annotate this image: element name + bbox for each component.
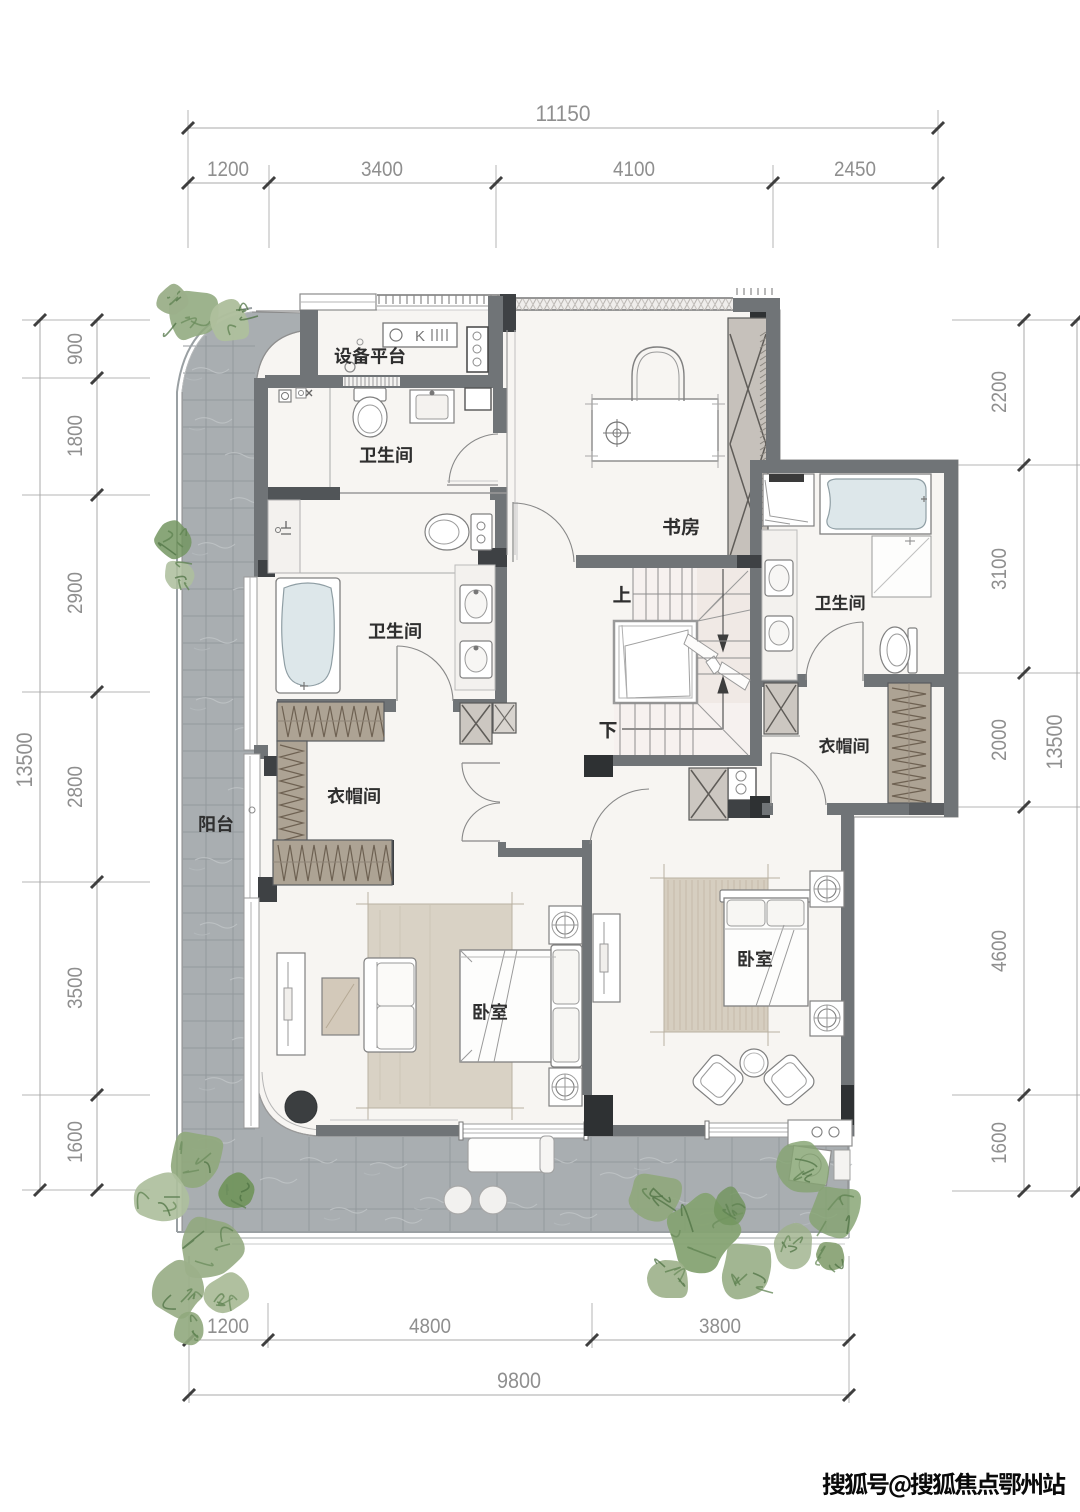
svg-text:3100: 3100 — [988, 548, 1011, 590]
svg-text:1200: 1200 — [207, 1315, 249, 1338]
svg-text:11150: 11150 — [536, 101, 591, 126]
svg-text:1800: 1800 — [64, 415, 87, 457]
svg-text:3800: 3800 — [699, 1315, 741, 1338]
svg-text:K: K — [415, 328, 425, 345]
svg-text:1200: 1200 — [207, 158, 249, 181]
svg-text:9800: 9800 — [497, 1368, 541, 1393]
svg-text:2800: 2800 — [64, 766, 87, 808]
svg-text:3500: 3500 — [64, 967, 87, 1009]
svg-text:1600: 1600 — [64, 1121, 87, 1163]
svg-text:2200: 2200 — [988, 371, 1011, 413]
svg-text:4100: 4100 — [613, 158, 655, 181]
svg-text:13500: 13500 — [1042, 715, 1067, 770]
svg-text:4800: 4800 — [409, 1315, 451, 1338]
svg-text:3400: 3400 — [361, 158, 403, 181]
svg-text:13500: 13500 — [12, 733, 37, 788]
svg-text:4600: 4600 — [988, 930, 1011, 972]
svg-text:2450: 2450 — [834, 158, 876, 181]
svg-text:2900: 2900 — [64, 572, 87, 614]
svg-text:2000: 2000 — [988, 719, 1011, 761]
svg-text:900: 900 — [64, 333, 87, 365]
svg-text:1600: 1600 — [988, 1122, 1011, 1164]
